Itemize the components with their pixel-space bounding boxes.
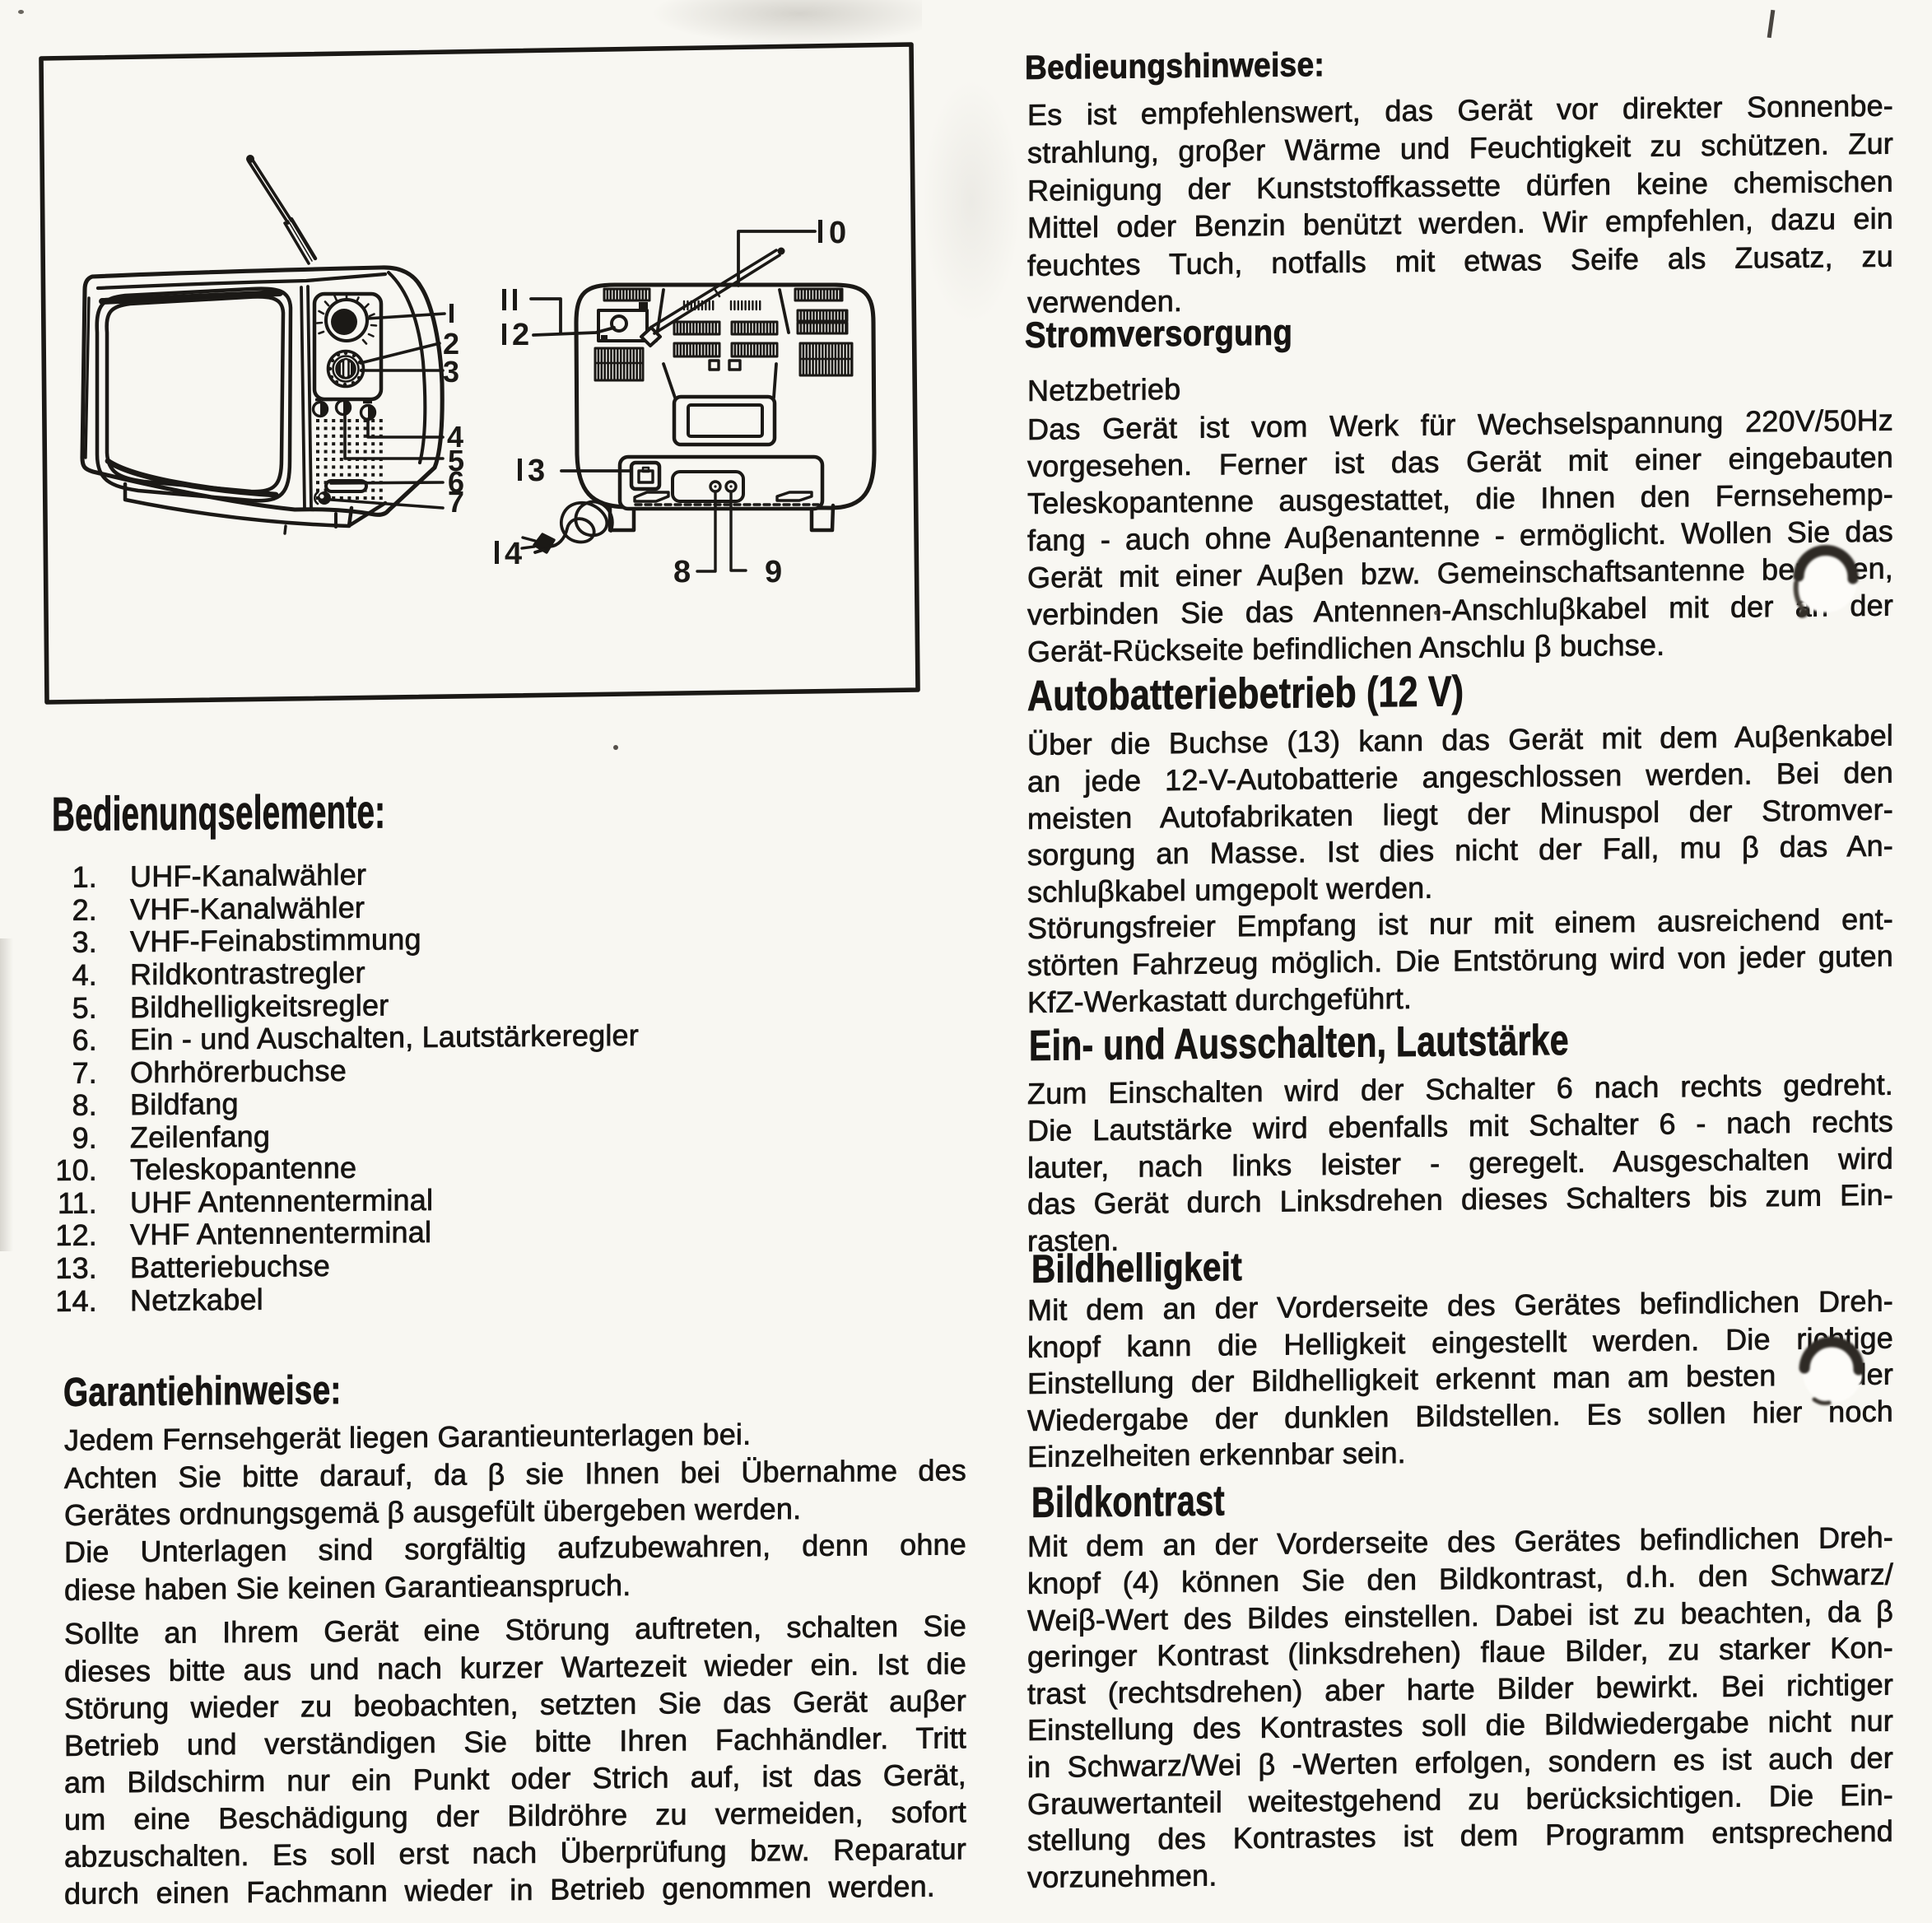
svg-text:4: 4 [505, 537, 522, 571]
svg-text:8: 8 [673, 555, 691, 589]
svg-text:3: 3 [528, 454, 545, 488]
svg-text:0: 0 [829, 216, 846, 250]
svg-text:7: 7 [448, 485, 464, 519]
svg-text:3: 3 [443, 355, 459, 389]
svg-text:9: 9 [765, 555, 782, 589]
svg-text:2: 2 [512, 318, 529, 352]
